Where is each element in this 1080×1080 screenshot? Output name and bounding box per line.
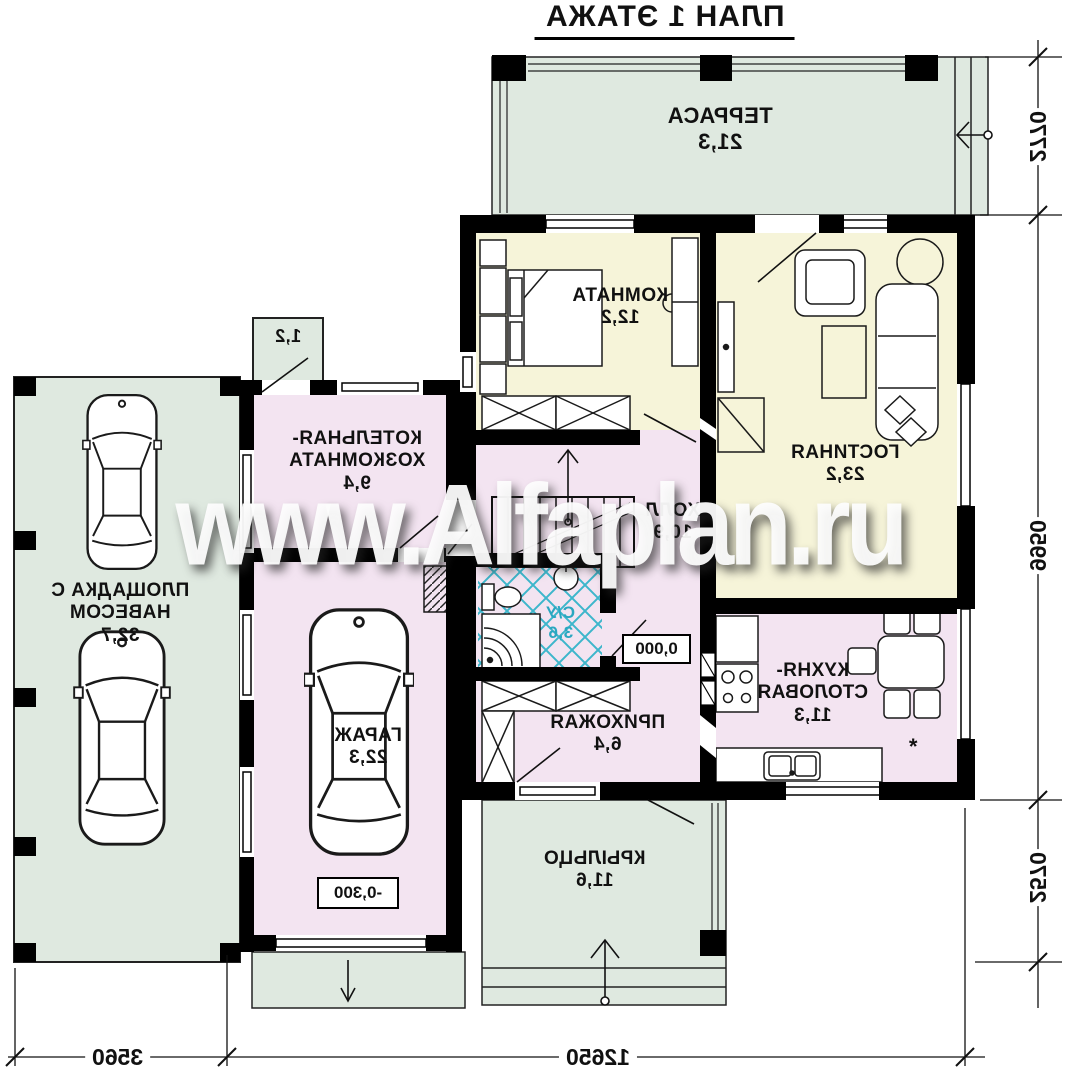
room-label-porch: КРЫЛЬЦО 11,6 [512, 848, 677, 893]
dim-bottom-12650: 12650 [528, 1042, 668, 1072]
room-label-bedroom: КОМНАТА 12,2 [540, 285, 700, 330]
plan-title-text: ПЛАН 1 ЭТАЖА [535, 0, 795, 40]
plan-title: ПЛАН 1 ЭТАЖА [470, 0, 860, 40]
room-label-terrace: ТЕРРАСА 21,3 [555, 103, 885, 155]
room-label-kitchen: КУХНЯ- СТОЛОВАЯ 11,3 [720, 660, 905, 727]
dim-right-2570: 2570 [1008, 839, 1068, 915]
elevation-ground: 0,000 [623, 635, 690, 663]
dim-bottom-3560: 3560 [58, 1042, 178, 1072]
room-label-stoop: 1,2 [258, 326, 318, 347]
room-label-wc: С/У 3,6 [518, 603, 603, 643]
room-label-entry: ПРИХОЖАЯ 6,4 [525, 712, 690, 757]
room-label-garage: ГАРАЖ 22,3 [288, 725, 448, 770]
watermark: www.Alfaplan.ru [92, 443, 987, 605]
elevation-garage: -0,300 [318, 878, 398, 908]
kitchen-appliance-mark: * [898, 734, 928, 760]
floor-plan-page: ПЛАН 1 ЭТАЖА ТЕРРАСА 21,3 КОМНАТА 12,2 Г… [0, 0, 1080, 1080]
dim-right-9950: 9950 [1008, 507, 1068, 583]
dim-right-2770: 2770 [1008, 98, 1068, 174]
